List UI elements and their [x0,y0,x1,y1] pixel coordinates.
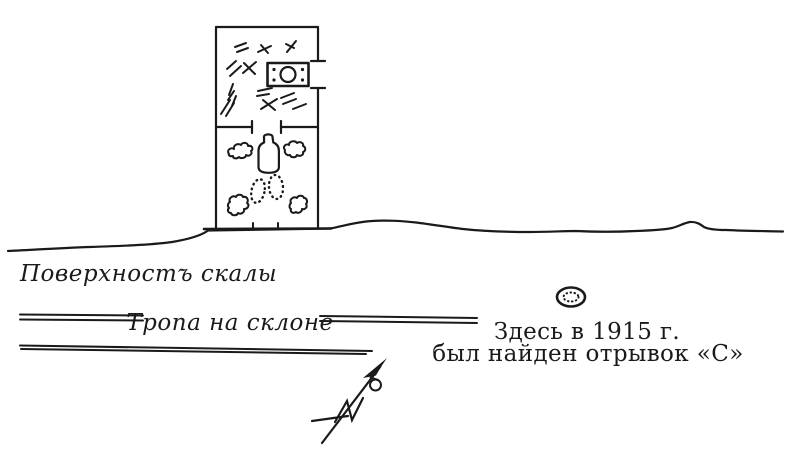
stone-blob-icon [228,143,252,159]
site-plan-drawing: Поверхностъ скалы Тропа на склоне Здесь … [0,0,790,450]
stone-chest-icon [268,63,309,86]
stone-blob-icons [228,141,307,215]
vessel-icon [258,134,278,172]
footprint-marks-icon [249,174,284,204]
stone-blob-icon [284,141,305,157]
find-spot-oval-icon [557,288,585,307]
rock-surface-label: Поверхностъ скалы [19,261,277,287]
north-arrow-icon [312,358,387,443]
site-plan-figure: Поверхностъ скалы Тропа на склоне Здесь … [0,0,790,450]
find-note-line2: был найден отрывок «С» [432,341,743,367]
chamber-plan-icon [204,27,331,229]
stone-blob-icon [290,196,308,213]
rock-surface-line [8,221,783,251]
slope-path-label: Тропа на склоне [126,310,333,336]
stone-blob-icon [228,195,249,216]
